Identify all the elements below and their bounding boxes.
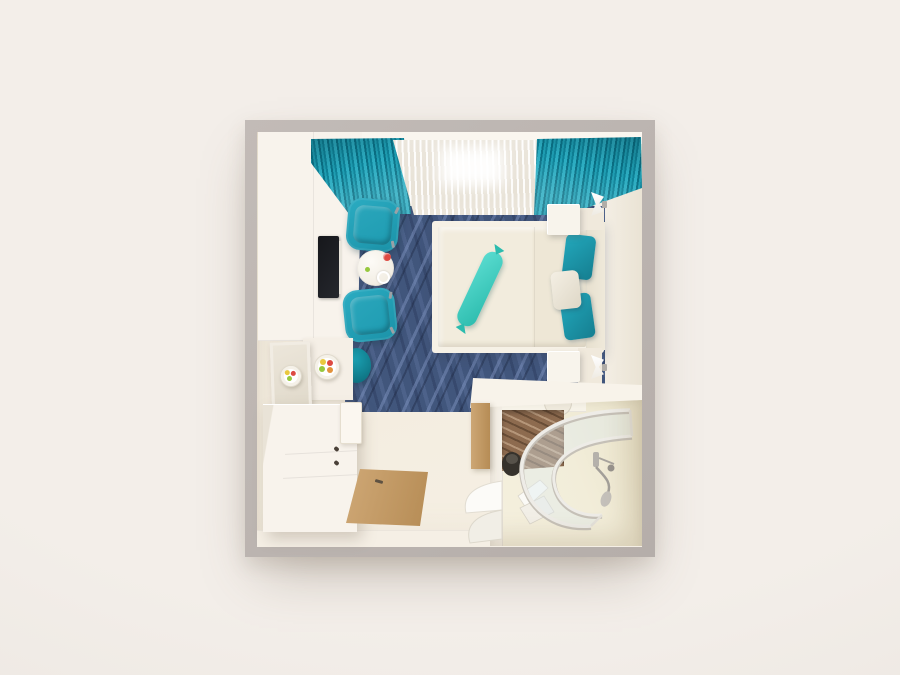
floor-towel <box>518 480 554 524</box>
shower-enclosure <box>522 410 632 528</box>
drawer-seam <box>283 474 357 479</box>
round-table <box>357 250 394 286</box>
armchair-top <box>345 197 401 253</box>
armchair-seat <box>349 294 391 336</box>
fruit <box>291 371 296 376</box>
shower-marble <box>502 410 564 471</box>
nightstand-bottom <box>547 351 580 382</box>
bathroom-door <box>471 403 490 469</box>
toilet <box>502 452 522 476</box>
fridge-door <box>340 402 362 444</box>
window-glow <box>440 147 504 187</box>
drawer-seam <box>285 450 357 455</box>
chair-leg <box>391 241 395 248</box>
berry-dish <box>383 253 391 261</box>
tv <box>318 236 339 298</box>
fruit <box>327 360 333 366</box>
mirror-plate-reflection <box>280 365 303 388</box>
fruit <box>319 366 325 372</box>
sink-basin <box>544 403 572 416</box>
entrance-door <box>346 467 428 527</box>
bathroom <box>490 393 642 546</box>
chair-leg <box>389 292 393 299</box>
duvet-fold <box>534 227 535 347</box>
pillow-white-center <box>550 270 582 311</box>
fruit <box>320 359 326 365</box>
shower-handset <box>593 452 615 508</box>
chair-leg <box>394 207 400 215</box>
sconce-mount <box>602 364 607 371</box>
sconce-mount <box>602 201 607 208</box>
sheer-curtain <box>392 139 549 217</box>
fruit <box>287 376 292 381</box>
drawer-knob <box>333 460 339 466</box>
fruit <box>327 367 333 373</box>
chair-leg <box>389 326 395 334</box>
hanging-towels <box>456 477 504 547</box>
armchair-seat <box>352 204 393 245</box>
olive <box>365 267 370 272</box>
white-ring <box>377 271 390 284</box>
armchair-bottom <box>341 286 398 343</box>
fruit <box>285 370 290 375</box>
bathroom-fixtures <box>490 393 642 546</box>
fruit-plate <box>314 354 340 380</box>
nightstand-top <box>547 204 580 235</box>
tv-bezel <box>339 241 342 294</box>
render-canvas <box>0 0 900 675</box>
